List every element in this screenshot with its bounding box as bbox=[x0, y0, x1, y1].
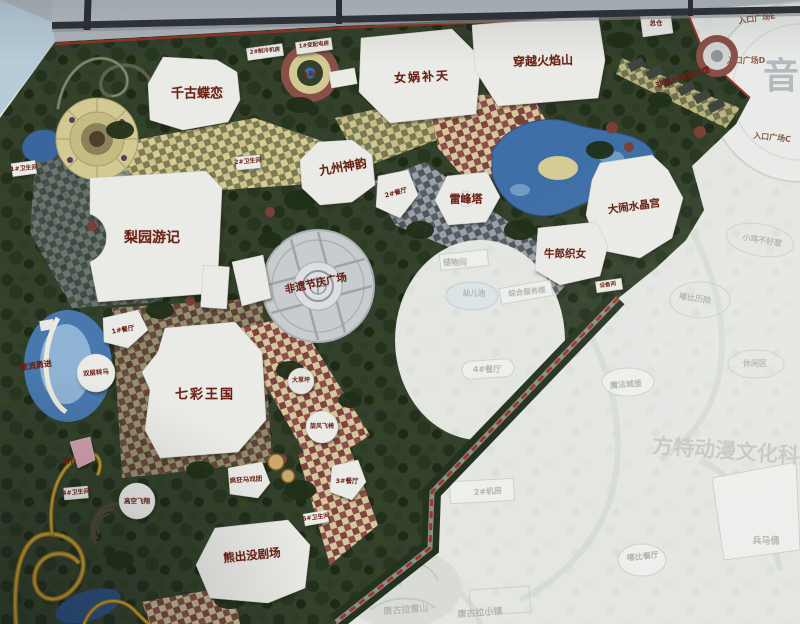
restaurant-3-label: 3#餐厅 bbox=[336, 478, 359, 485]
leifeng-ta-label: 雷峰塔 bbox=[450, 194, 483, 205]
entrance-plaza-d-label: 入口广场D bbox=[727, 57, 766, 65]
qiangu-dielian-label: 千古蝶恋 bbox=[171, 88, 223, 101]
dubi-lixian-label: 嘟比历险 bbox=[679, 293, 712, 305]
zongcang-label: 总仓 bbox=[650, 20, 663, 27]
entrance-plaza-c-label: 入口广场C bbox=[753, 132, 792, 144]
jiuzhou-shenyun-label: 九州神韵 bbox=[318, 157, 367, 177]
chuwu-jian-label: 储物间 bbox=[443, 259, 467, 267]
restroom-5-label: 5#卫生间 bbox=[302, 513, 330, 523]
restroom-2-label: 2#卫生间 bbox=[234, 158, 262, 166]
qicai-wangguo-label: 七彩王国 bbox=[175, 389, 235, 402]
xuanfeng-feiyi-label: 旋风飞椅 bbox=[310, 424, 334, 430]
watermark-yinyue-label: 音乐 bbox=[763, 59, 800, 95]
dubi-canting-label: 嘟比餐厅 bbox=[627, 551, 660, 562]
restaurant-4-label: 4#餐厅 bbox=[473, 366, 501, 374]
nvwa-butian-label: 女娲补天 bbox=[394, 70, 451, 85]
map-labels-layer: 千古蝶恋女娲补天穿越火焰山九州神韵雷峰塔大闹水晶宫牛郎织女梨园游记七彩王国熊出没… bbox=[0, 0, 800, 624]
restaurant-1-label: 1#餐厅 bbox=[111, 325, 135, 335]
mofa-chengbao-label: 魔法城堡 bbox=[610, 380, 642, 390]
zonghe-fuwulou-label: 综合服务楼 bbox=[508, 286, 546, 297]
restaurant-2-label: 2#餐厅 bbox=[384, 187, 408, 199]
gaokong-feixiang-label: 高空飞翔 bbox=[124, 498, 150, 505]
youer-chi-label: 幼儿池 bbox=[463, 289, 486, 297]
wutai-label: 舞台 bbox=[64, 458, 77, 465]
jifang-2-label: 2#机房 bbox=[474, 487, 503, 497]
bingmayong-label: 兵马俑 bbox=[752, 538, 779, 547]
tanggula-xueshan-label: 唐古拉雪山 bbox=[383, 605, 429, 617]
watermark-fangte-label: 方特动漫文化科技 bbox=[651, 436, 800, 469]
niulang-zhinv-label: 牛郎织女 bbox=[544, 249, 586, 260]
da-caoping-label: 大草坪 bbox=[292, 378, 310, 384]
chuanyue-huoyanshan-label: 穿越火焰山 bbox=[513, 54, 573, 68]
feiyi-xiaozhen-exhibit-label: 非遗小镇展示馆 bbox=[655, 66, 711, 90]
feiyi-jieqing-guangchang-label: 非遗节庆广场 bbox=[284, 272, 348, 295]
danao-shuijinggong-label: 大闹水晶宫 bbox=[607, 198, 660, 216]
xiongchumo-juchang-label: 熊出没剧场 bbox=[223, 547, 281, 564]
peidian-fang-label: 1#变配电房 bbox=[299, 42, 330, 51]
xiaoji-buhaore-label: 小鸡不好惹 bbox=[742, 234, 783, 249]
restroom-1-label: 1#卫生间 bbox=[10, 165, 38, 173]
park-map-photo: 千古蝶恋女娲补天穿越火焰山九州神韵雷峰塔大闹水晶宫牛郎织女梨园游记七彩王国熊出没… bbox=[0, 0, 800, 624]
jiliu-yongjin-label: 激流勇进 bbox=[20, 360, 53, 372]
liyuan-youji-label: 梨园游记 bbox=[124, 231, 180, 245]
shebei-jian-label: 设备间 bbox=[599, 282, 616, 290]
yufu-shan-label: 鱼凫山 bbox=[302, 71, 320, 79]
shuangceng-zhuanma-label: 双层转马 bbox=[83, 369, 109, 378]
lengji-fang-label: 2#制冷机房 bbox=[250, 48, 281, 57]
tanggula-xiaozhen-label: 唐古拉小镇 bbox=[457, 608, 503, 620]
xiuxian-qu-label: 休闲区 bbox=[743, 360, 767, 368]
fengkuang-maxituan-label: 疯狂马戏团 bbox=[230, 476, 263, 485]
restroom-4-label: 4#卫生间 bbox=[62, 489, 90, 497]
entrance-plaza-e-label: 入口广场E bbox=[738, 12, 776, 25]
